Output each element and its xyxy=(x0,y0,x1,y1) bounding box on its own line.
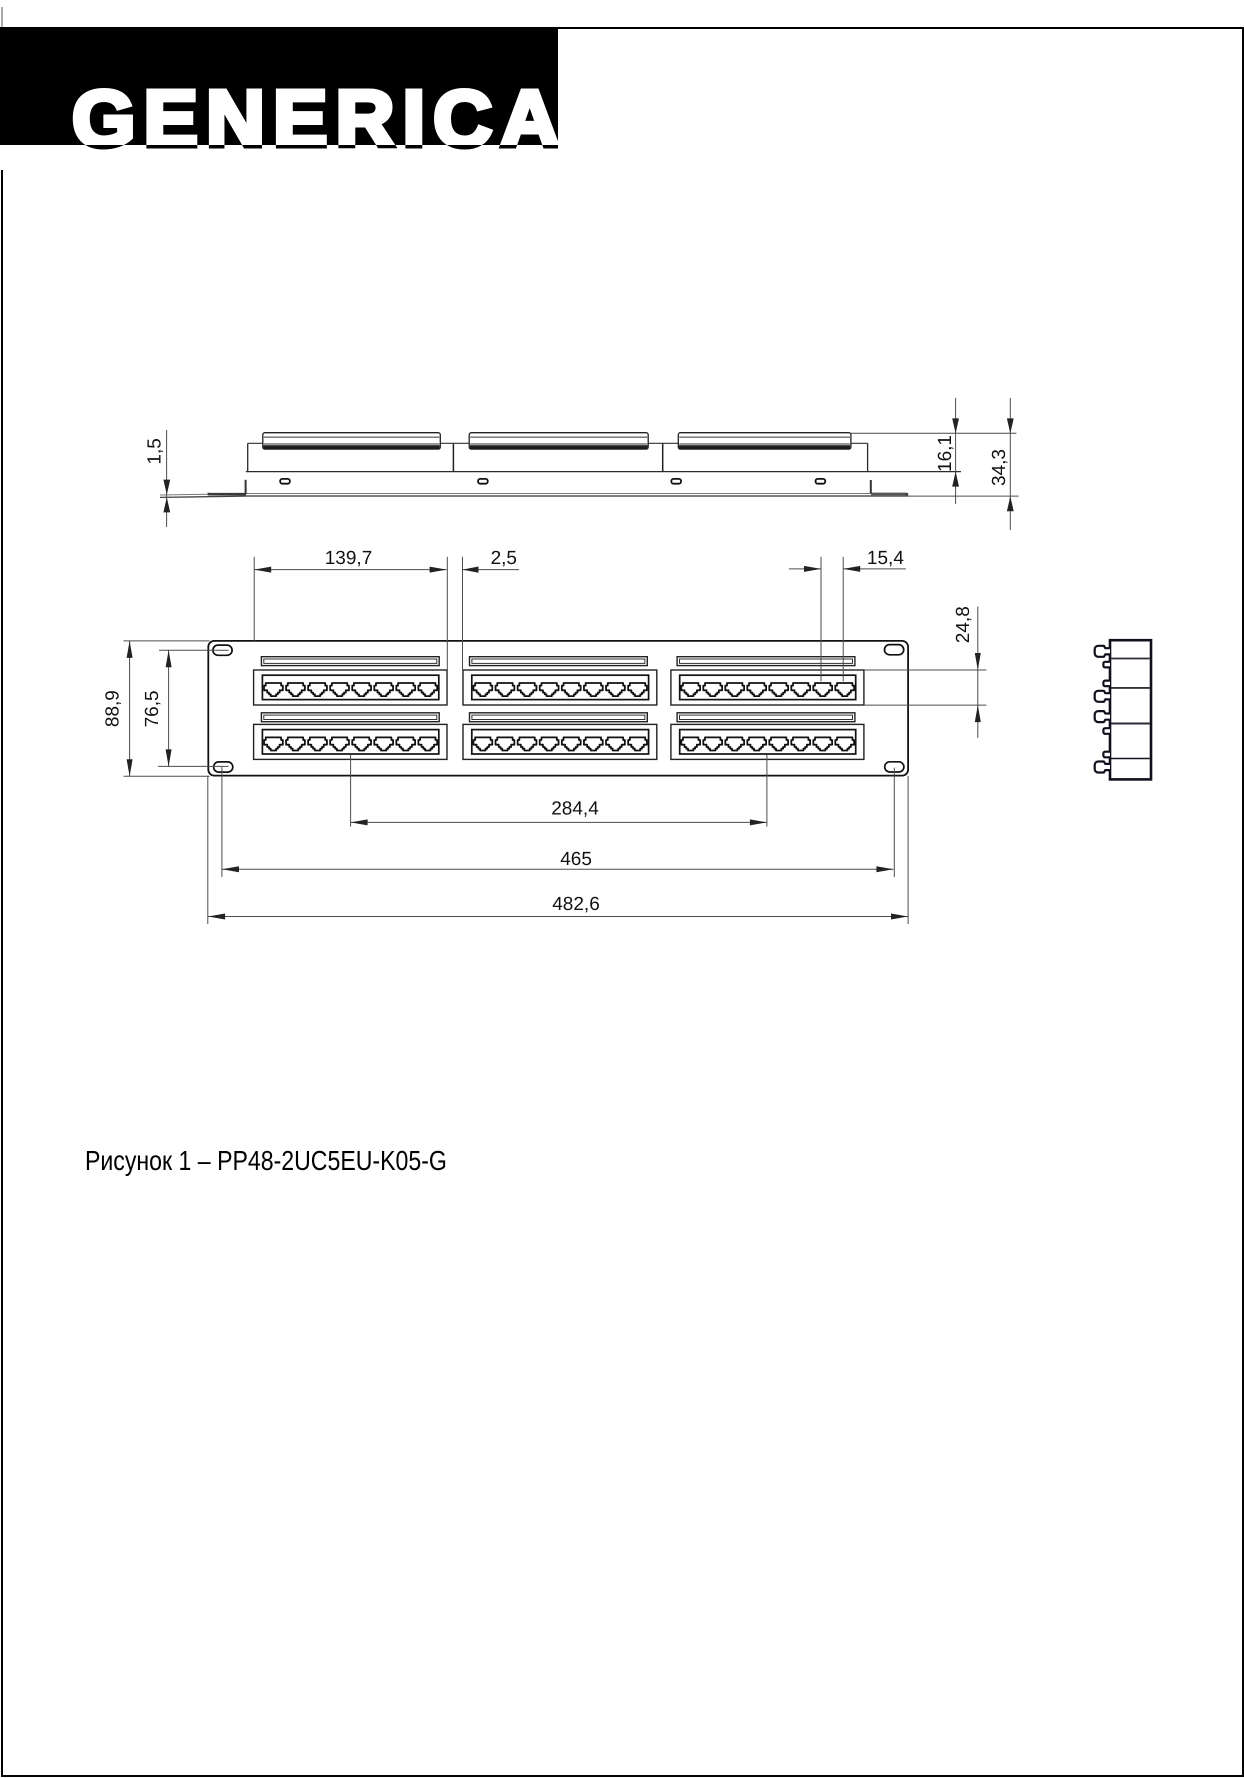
svg-text:24,8: 24,8 xyxy=(953,606,974,643)
svg-text:16,1: 16,1 xyxy=(935,435,956,472)
svg-text:1,5: 1,5 xyxy=(145,438,166,464)
svg-text:284,4: 284,4 xyxy=(551,798,599,819)
svg-text:15,4: 15,4 xyxy=(867,548,904,569)
svg-text:2,5: 2,5 xyxy=(491,548,517,569)
svg-text:139,7: 139,7 xyxy=(325,548,373,569)
svg-text:482,6: 482,6 xyxy=(552,894,600,915)
svg-text:465: 465 xyxy=(560,849,592,870)
svg-text:34,3: 34,3 xyxy=(989,449,1010,486)
svg-text:88,9: 88,9 xyxy=(103,690,124,727)
svg-text:76,5: 76,5 xyxy=(142,690,163,727)
